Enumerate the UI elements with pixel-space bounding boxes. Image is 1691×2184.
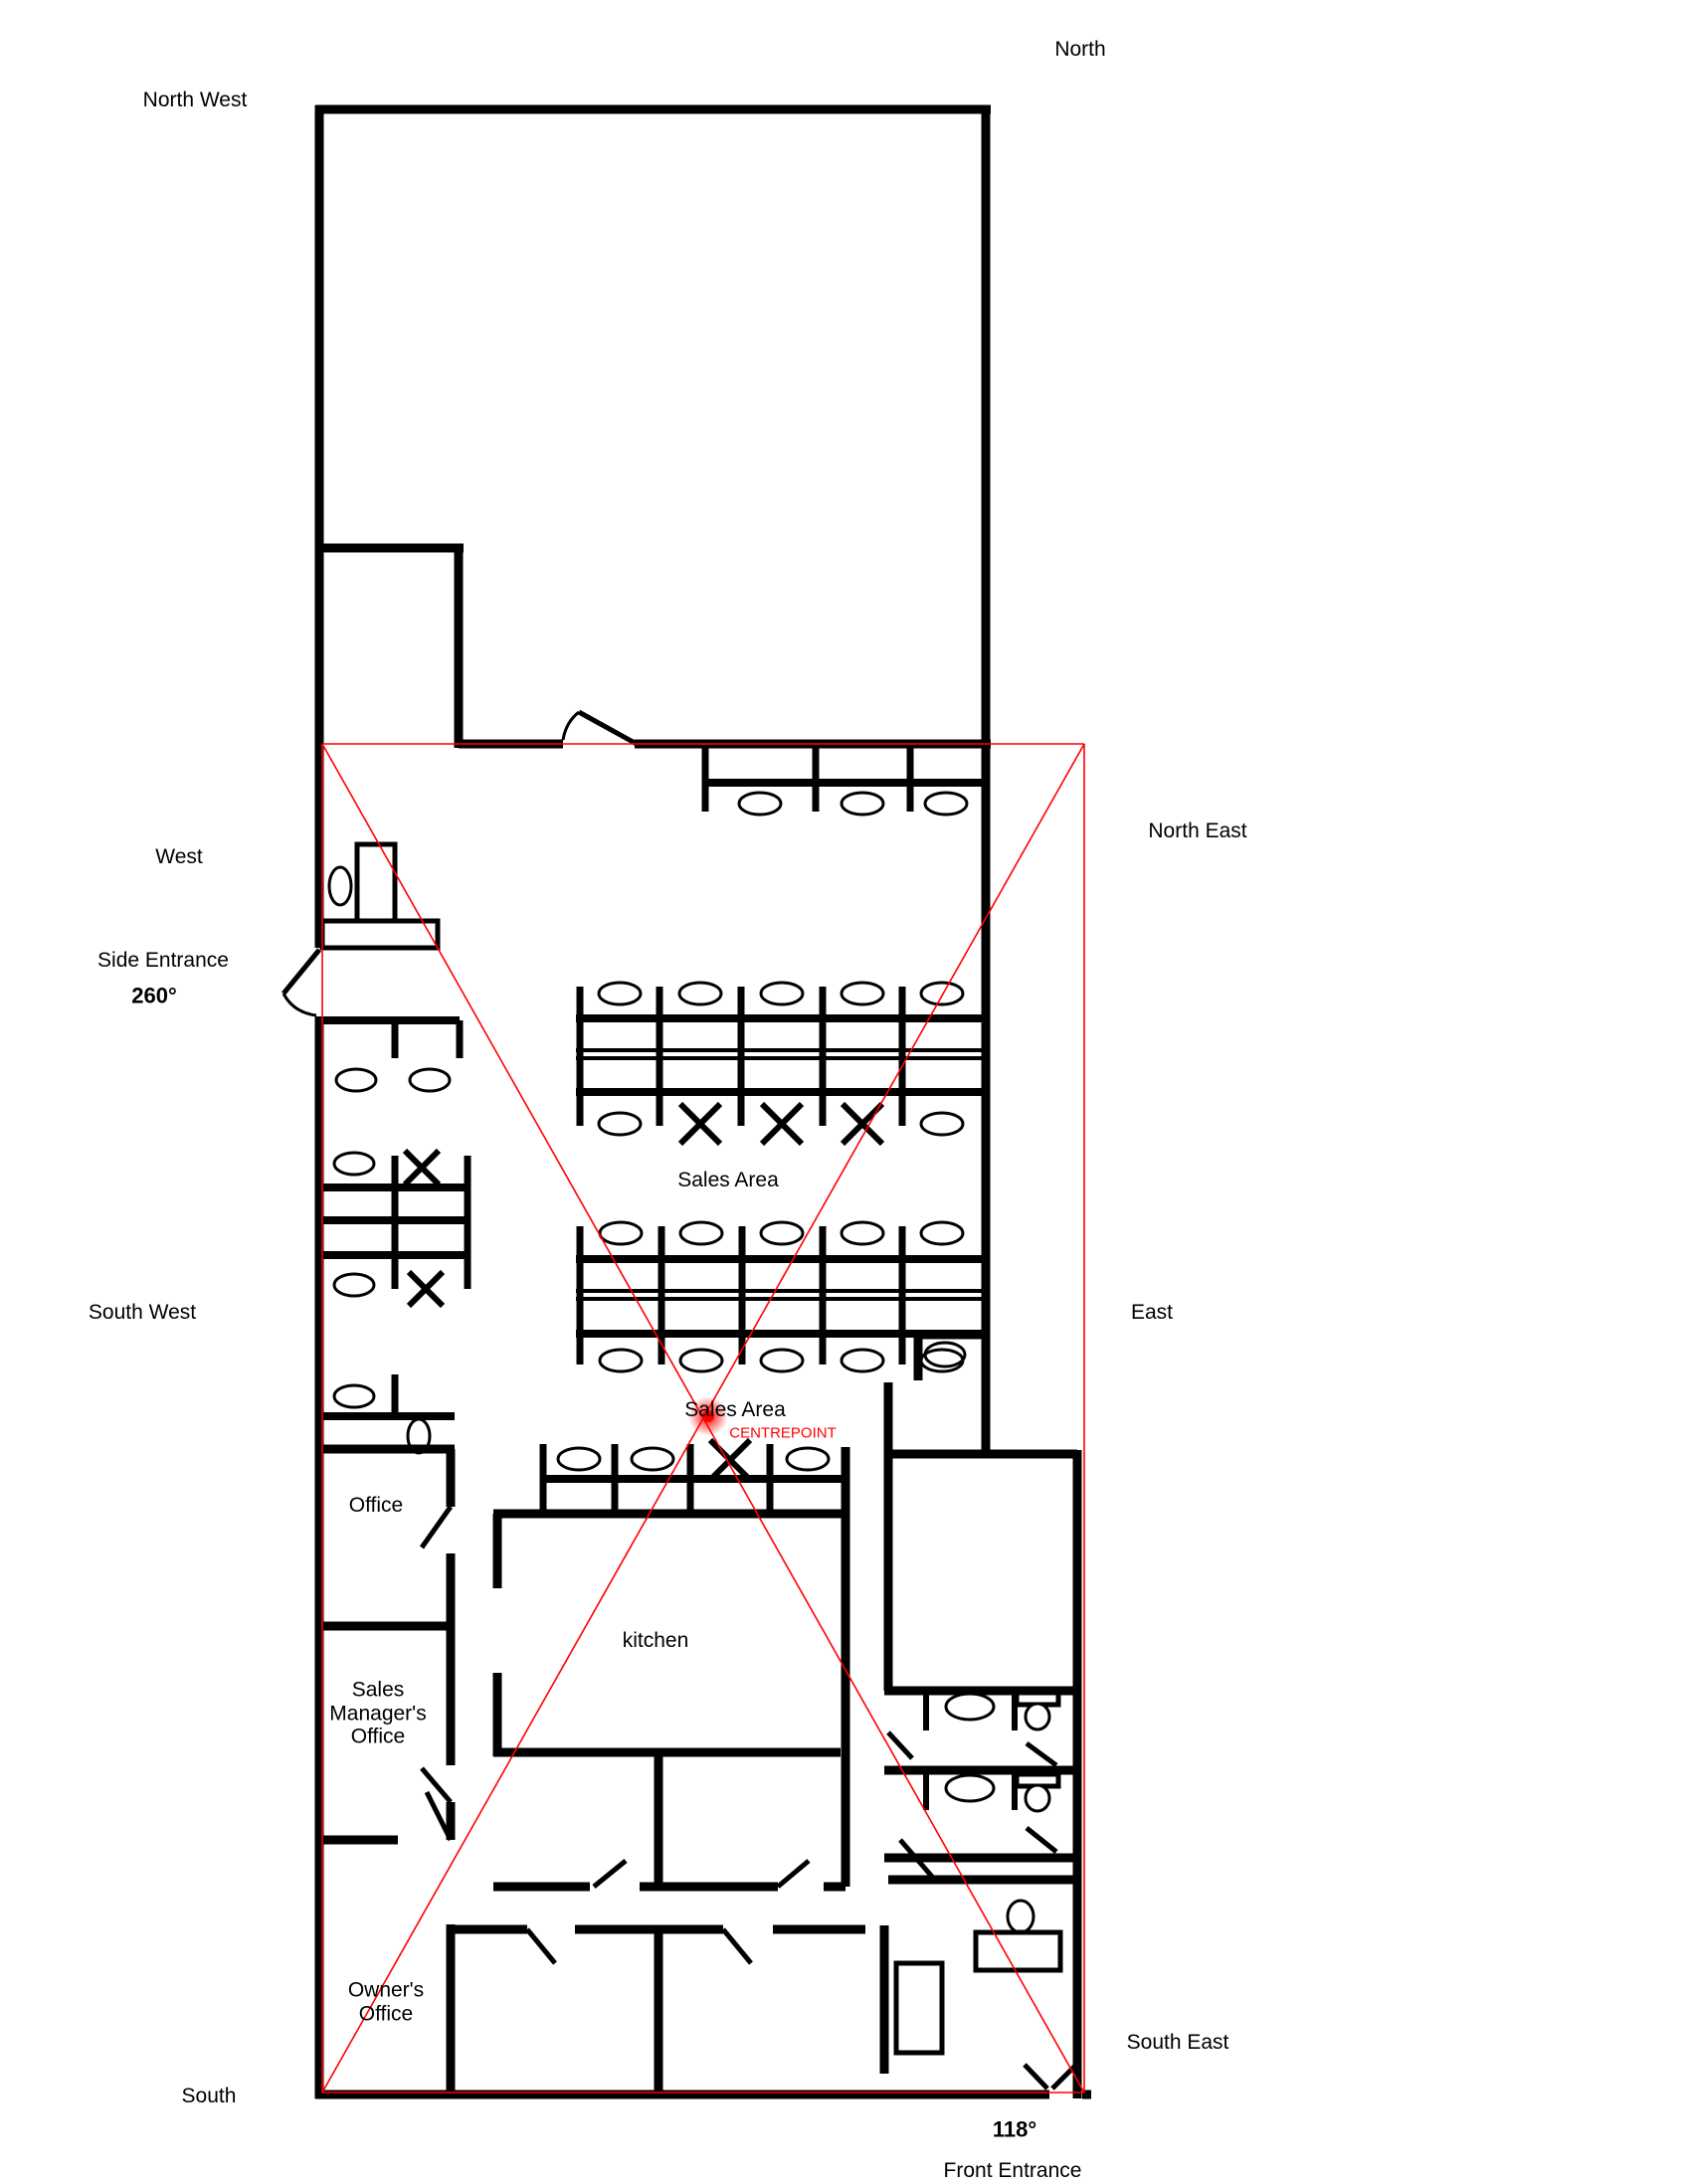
label-sales-area-1: Sales Area (677, 1169, 779, 1192)
floor-plan: NorthNorth WestWestSide Entrance260°Nort… (0, 0, 1691, 2184)
label-owners-office: Owner's Office (348, 1978, 424, 2025)
label-east: East (1131, 1301, 1173, 1325)
floor-plan-labels: NorthNorth WestWestSide Entrance260°Nort… (0, 0, 1691, 2184)
label-north-west: North West (143, 89, 248, 112)
label-kitchen: kitchen (623, 1629, 689, 1653)
label-centrepoint: CENTREPOINT (729, 1426, 837, 1443)
label-front-entrance: Front Entrance (944, 2159, 1082, 2183)
label-side-angle: 260° (131, 985, 177, 1009)
label-south-west: South West (89, 1301, 196, 1325)
label-south: South (182, 2085, 237, 2108)
label-sales-managers-office: Sales Manager's Office (329, 1679, 426, 1749)
label-side-entrance: Side Entrance (97, 949, 229, 973)
label-north-east: North East (1148, 819, 1246, 843)
label-south-east: South East (1127, 2031, 1229, 2055)
label-office: Office (349, 1494, 403, 1518)
label-sales-area-2: Sales Area (684, 1398, 786, 1422)
label-north: North (1054, 38, 1105, 62)
label-west: West (155, 845, 202, 869)
label-front-angle: 118° (993, 2118, 1036, 2143)
